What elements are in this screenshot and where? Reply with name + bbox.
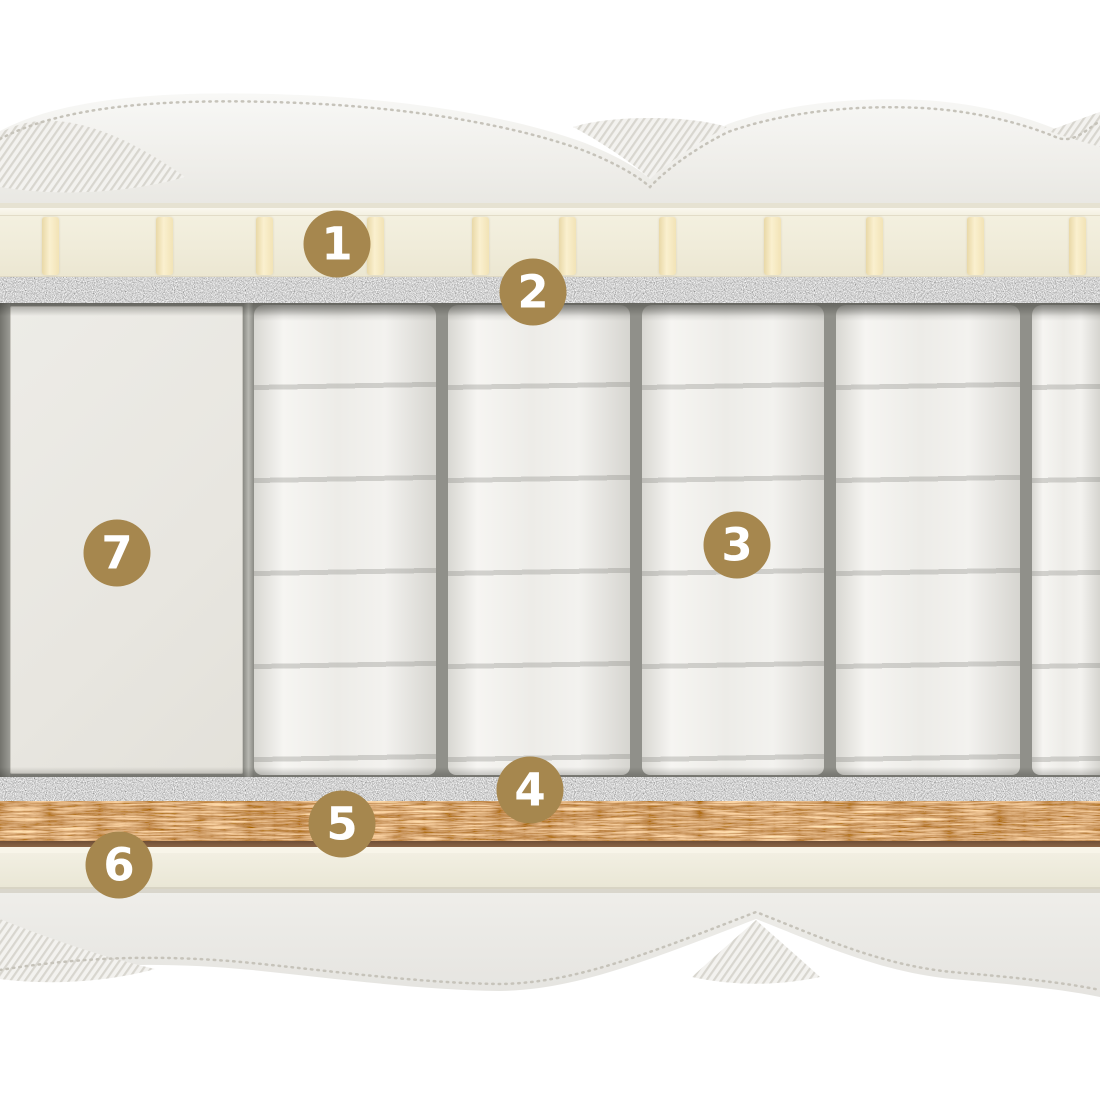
pocket-spring-zone <box>0 303 1100 777</box>
layer-badge-5[interactable]: 5 <box>309 791 376 858</box>
pocket-spring <box>1032 305 1100 775</box>
ventilation-slat <box>42 217 59 275</box>
base-foam-layer <box>0 853 1100 889</box>
bottom-cover-shape <box>0 889 1100 1014</box>
latex-top-highlight <box>0 208 1100 216</box>
top-cover-body <box>0 93 1100 210</box>
bottom-cover-body <box>0 889 1100 997</box>
mattress-cross-section-diagram: 1 2 3 4 5 6 7 <box>0 0 1100 1100</box>
foam-spring-seam <box>243 303 254 777</box>
layer-badge-2[interactable]: 2 <box>500 259 567 326</box>
top-cover-layer <box>0 85 1100 210</box>
layer-badge-7[interactable]: 7 <box>84 520 151 587</box>
ventilation-slat <box>659 217 676 275</box>
ventilation-slat <box>764 217 781 275</box>
ventilation-slat <box>256 217 273 275</box>
ventilation-slat <box>866 217 883 275</box>
ventilation-slat <box>559 217 576 275</box>
ventilation-slat <box>156 217 173 275</box>
layer-badge-4[interactable]: 4 <box>497 757 564 824</box>
cover-top-edge <box>0 889 1100 893</box>
mattress-side-edge <box>0 303 10 777</box>
layer-badge-6[interactable]: 6 <box>86 832 153 899</box>
layer-badge-3[interactable]: 3 <box>704 512 771 579</box>
ventilation-slat <box>472 217 489 275</box>
ventilation-slat <box>967 217 984 275</box>
pocket-spring <box>254 305 436 775</box>
layer-badge-1[interactable]: 1 <box>304 211 371 278</box>
pocket-spring <box>448 305 630 775</box>
bottom-cover-layer <box>0 889 1100 1014</box>
top-cover-shape <box>0 85 1100 210</box>
ventilation-slat <box>1069 217 1086 275</box>
pocket-spring <box>836 305 1020 775</box>
